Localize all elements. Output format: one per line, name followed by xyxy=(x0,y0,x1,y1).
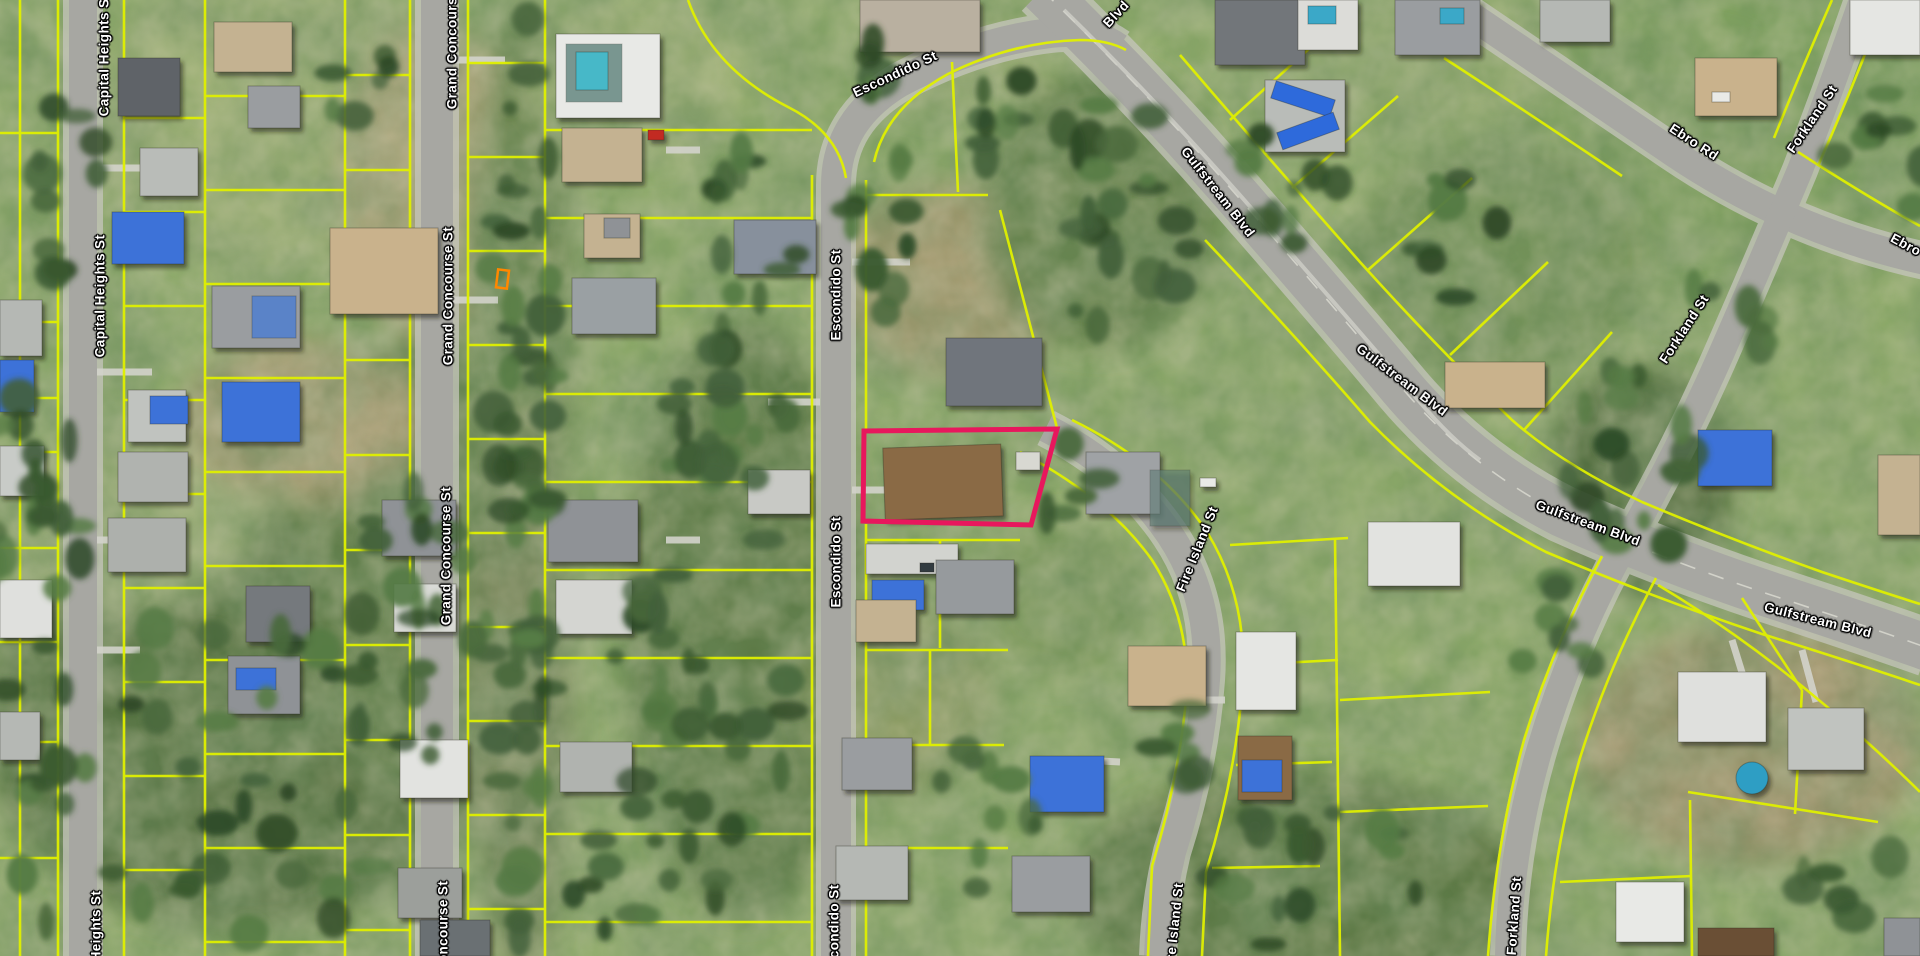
tree xyxy=(1685,268,1703,307)
tree xyxy=(1234,149,1263,176)
tree xyxy=(1817,142,1853,169)
tree xyxy=(889,199,924,225)
tree xyxy=(722,281,746,306)
tree xyxy=(1871,836,1909,879)
tree xyxy=(450,547,477,574)
tree xyxy=(675,410,693,445)
tree xyxy=(65,538,94,579)
tree xyxy=(653,568,693,583)
tree xyxy=(730,132,753,174)
tree xyxy=(671,707,709,742)
tree xyxy=(711,235,733,274)
tree xyxy=(1250,937,1286,951)
tree xyxy=(301,628,341,670)
tree xyxy=(39,745,78,787)
tree xyxy=(256,814,298,853)
tree xyxy=(56,792,75,816)
tree xyxy=(991,766,1031,793)
tree xyxy=(1866,84,1904,102)
tree xyxy=(38,903,54,941)
tree xyxy=(514,629,546,648)
tree xyxy=(256,686,277,710)
tree xyxy=(1508,649,1537,674)
tree xyxy=(1096,126,1138,162)
tree xyxy=(378,56,399,78)
tree xyxy=(530,206,548,239)
tree xyxy=(708,713,742,741)
tree xyxy=(118,696,144,712)
tree xyxy=(1559,463,1579,499)
tree xyxy=(493,411,522,436)
tree xyxy=(1248,123,1275,147)
tree xyxy=(1271,895,1285,922)
tree xyxy=(353,702,367,744)
tree xyxy=(620,795,654,821)
tree xyxy=(1281,233,1308,253)
tree xyxy=(1379,842,1405,860)
tree xyxy=(421,745,439,764)
tree xyxy=(860,86,878,104)
tree xyxy=(57,109,96,124)
tree xyxy=(495,865,536,897)
tree xyxy=(357,514,385,529)
tree xyxy=(34,477,57,512)
tree xyxy=(669,378,694,396)
tree xyxy=(984,805,1007,831)
tree xyxy=(635,906,660,926)
tree xyxy=(498,174,516,195)
tree xyxy=(483,772,521,790)
tree xyxy=(404,472,424,512)
tree xyxy=(406,659,438,679)
tree xyxy=(1242,807,1275,848)
tree xyxy=(648,592,668,634)
tree xyxy=(130,883,154,922)
tree xyxy=(324,98,340,122)
tree xyxy=(240,773,271,788)
tree xyxy=(1177,755,1216,790)
tree xyxy=(509,700,542,731)
tree xyxy=(479,722,520,754)
tree xyxy=(475,253,508,283)
tree xyxy=(55,673,74,707)
tree xyxy=(768,701,809,721)
tree xyxy=(513,473,544,490)
tree xyxy=(389,733,418,751)
tree xyxy=(1065,487,1098,505)
tree xyxy=(136,607,174,651)
tree xyxy=(531,361,550,385)
tree xyxy=(1080,96,1118,114)
tree xyxy=(871,297,901,327)
tree xyxy=(317,898,351,939)
tree xyxy=(275,860,310,890)
tree xyxy=(606,649,624,665)
tree xyxy=(79,128,112,157)
tree xyxy=(1174,239,1204,259)
tree xyxy=(767,664,805,696)
tree xyxy=(1832,901,1876,934)
tree xyxy=(508,916,531,956)
tree xyxy=(280,783,297,801)
tree xyxy=(1560,616,1579,632)
tree xyxy=(334,788,356,821)
tree xyxy=(538,264,563,296)
tree xyxy=(1661,459,1699,486)
tree xyxy=(538,137,558,180)
tree xyxy=(976,76,991,105)
tree xyxy=(774,399,801,433)
tree xyxy=(963,878,991,898)
tree xyxy=(335,101,374,131)
tree xyxy=(1427,173,1445,188)
tree xyxy=(397,609,441,627)
tree xyxy=(856,43,883,69)
tree xyxy=(1285,888,1316,923)
tree xyxy=(1482,206,1511,240)
tree xyxy=(1006,67,1036,96)
tree xyxy=(6,854,38,895)
tree xyxy=(745,424,764,447)
tree xyxy=(654,664,668,701)
tree xyxy=(684,656,709,675)
tree xyxy=(752,280,768,315)
tree xyxy=(648,628,680,649)
tree xyxy=(1138,173,1156,187)
tree xyxy=(1541,574,1572,602)
tree xyxy=(580,830,617,849)
tree xyxy=(196,711,239,732)
tree xyxy=(1158,206,1196,235)
tree xyxy=(525,294,565,337)
tree xyxy=(1671,405,1693,445)
tree xyxy=(429,520,469,545)
tree xyxy=(932,770,951,793)
tree xyxy=(659,869,681,892)
tree xyxy=(856,248,888,292)
tree xyxy=(43,575,71,601)
tree xyxy=(1764,334,1779,350)
tree xyxy=(646,833,665,848)
tree xyxy=(597,917,612,941)
tree xyxy=(270,614,291,656)
tree xyxy=(98,864,127,881)
tree xyxy=(562,881,586,909)
tree xyxy=(661,790,686,809)
tree xyxy=(1567,642,1595,659)
tree xyxy=(529,765,551,809)
tree xyxy=(709,185,725,204)
tree xyxy=(1808,864,1847,883)
tree xyxy=(1287,825,1312,864)
tree xyxy=(504,815,521,832)
tree xyxy=(1170,700,1211,720)
tree xyxy=(697,332,735,366)
tree xyxy=(1594,428,1630,461)
tree xyxy=(743,530,786,550)
tree xyxy=(1158,260,1172,288)
tree xyxy=(1700,282,1721,301)
tree xyxy=(740,465,769,490)
tree xyxy=(229,914,268,952)
tree xyxy=(1059,217,1103,239)
tree xyxy=(458,621,487,658)
tree xyxy=(1283,205,1299,235)
tree xyxy=(196,620,230,649)
tree xyxy=(1865,123,1892,138)
tree xyxy=(588,853,625,881)
tree xyxy=(616,767,657,795)
tree xyxy=(1324,805,1343,820)
tree xyxy=(1408,880,1423,906)
tree xyxy=(976,108,996,139)
tree xyxy=(1079,469,1120,489)
tree xyxy=(498,354,520,392)
tree xyxy=(1444,169,1476,191)
tree xyxy=(508,501,531,517)
tree xyxy=(32,639,58,654)
tree xyxy=(349,857,393,874)
tree xyxy=(698,430,722,457)
tree xyxy=(1607,366,1635,388)
tree xyxy=(1322,165,1353,201)
tree xyxy=(1135,738,1177,757)
tree xyxy=(764,262,801,277)
aerial-imagery xyxy=(0,0,1920,956)
tree xyxy=(1028,816,1043,834)
tree xyxy=(1068,304,1084,318)
tree xyxy=(1604,385,1640,411)
aerial-parcel-map[interactable]: Capital Heights StCapital Heights StCapi… xyxy=(0,0,1920,956)
tree xyxy=(831,200,867,219)
tree xyxy=(344,592,380,635)
tree xyxy=(175,757,201,777)
tree xyxy=(35,256,72,290)
tree xyxy=(86,159,108,188)
tree xyxy=(411,513,432,546)
tree xyxy=(1098,235,1124,278)
tree xyxy=(890,148,913,172)
tree xyxy=(339,664,379,686)
tree xyxy=(508,62,550,87)
tree xyxy=(1735,285,1763,327)
tree xyxy=(783,245,809,264)
tree xyxy=(1436,289,1476,306)
tree xyxy=(503,101,518,116)
tree xyxy=(1242,207,1280,235)
tree xyxy=(197,810,239,836)
tree xyxy=(126,651,161,692)
tree xyxy=(1070,127,1086,171)
tree xyxy=(717,812,746,847)
tree xyxy=(971,838,988,869)
tree xyxy=(1287,180,1303,197)
tree xyxy=(1213,874,1255,903)
tree xyxy=(61,419,77,463)
tree xyxy=(493,222,531,240)
tree xyxy=(142,699,173,735)
tree xyxy=(700,869,733,891)
tree xyxy=(898,233,916,259)
tree xyxy=(1416,246,1447,275)
tree xyxy=(23,154,61,193)
tree xyxy=(314,64,351,81)
tree xyxy=(501,285,525,326)
tree xyxy=(1086,306,1110,344)
tree xyxy=(679,829,699,864)
tree xyxy=(174,871,203,899)
tree xyxy=(426,723,443,740)
tree xyxy=(1637,511,1651,530)
tree xyxy=(705,369,745,408)
tree xyxy=(1131,103,1168,129)
tree xyxy=(529,400,566,432)
tree xyxy=(359,527,393,554)
tree xyxy=(1577,391,1592,426)
tree xyxy=(236,789,253,823)
tree xyxy=(482,444,516,486)
tree xyxy=(995,105,1020,141)
tree xyxy=(512,2,545,37)
tree xyxy=(682,790,714,823)
tree xyxy=(772,750,789,793)
tree xyxy=(528,489,567,509)
tree xyxy=(1650,526,1687,563)
tree xyxy=(1589,500,1612,543)
tree xyxy=(948,736,982,764)
tree xyxy=(1098,188,1128,219)
tree xyxy=(536,675,552,699)
